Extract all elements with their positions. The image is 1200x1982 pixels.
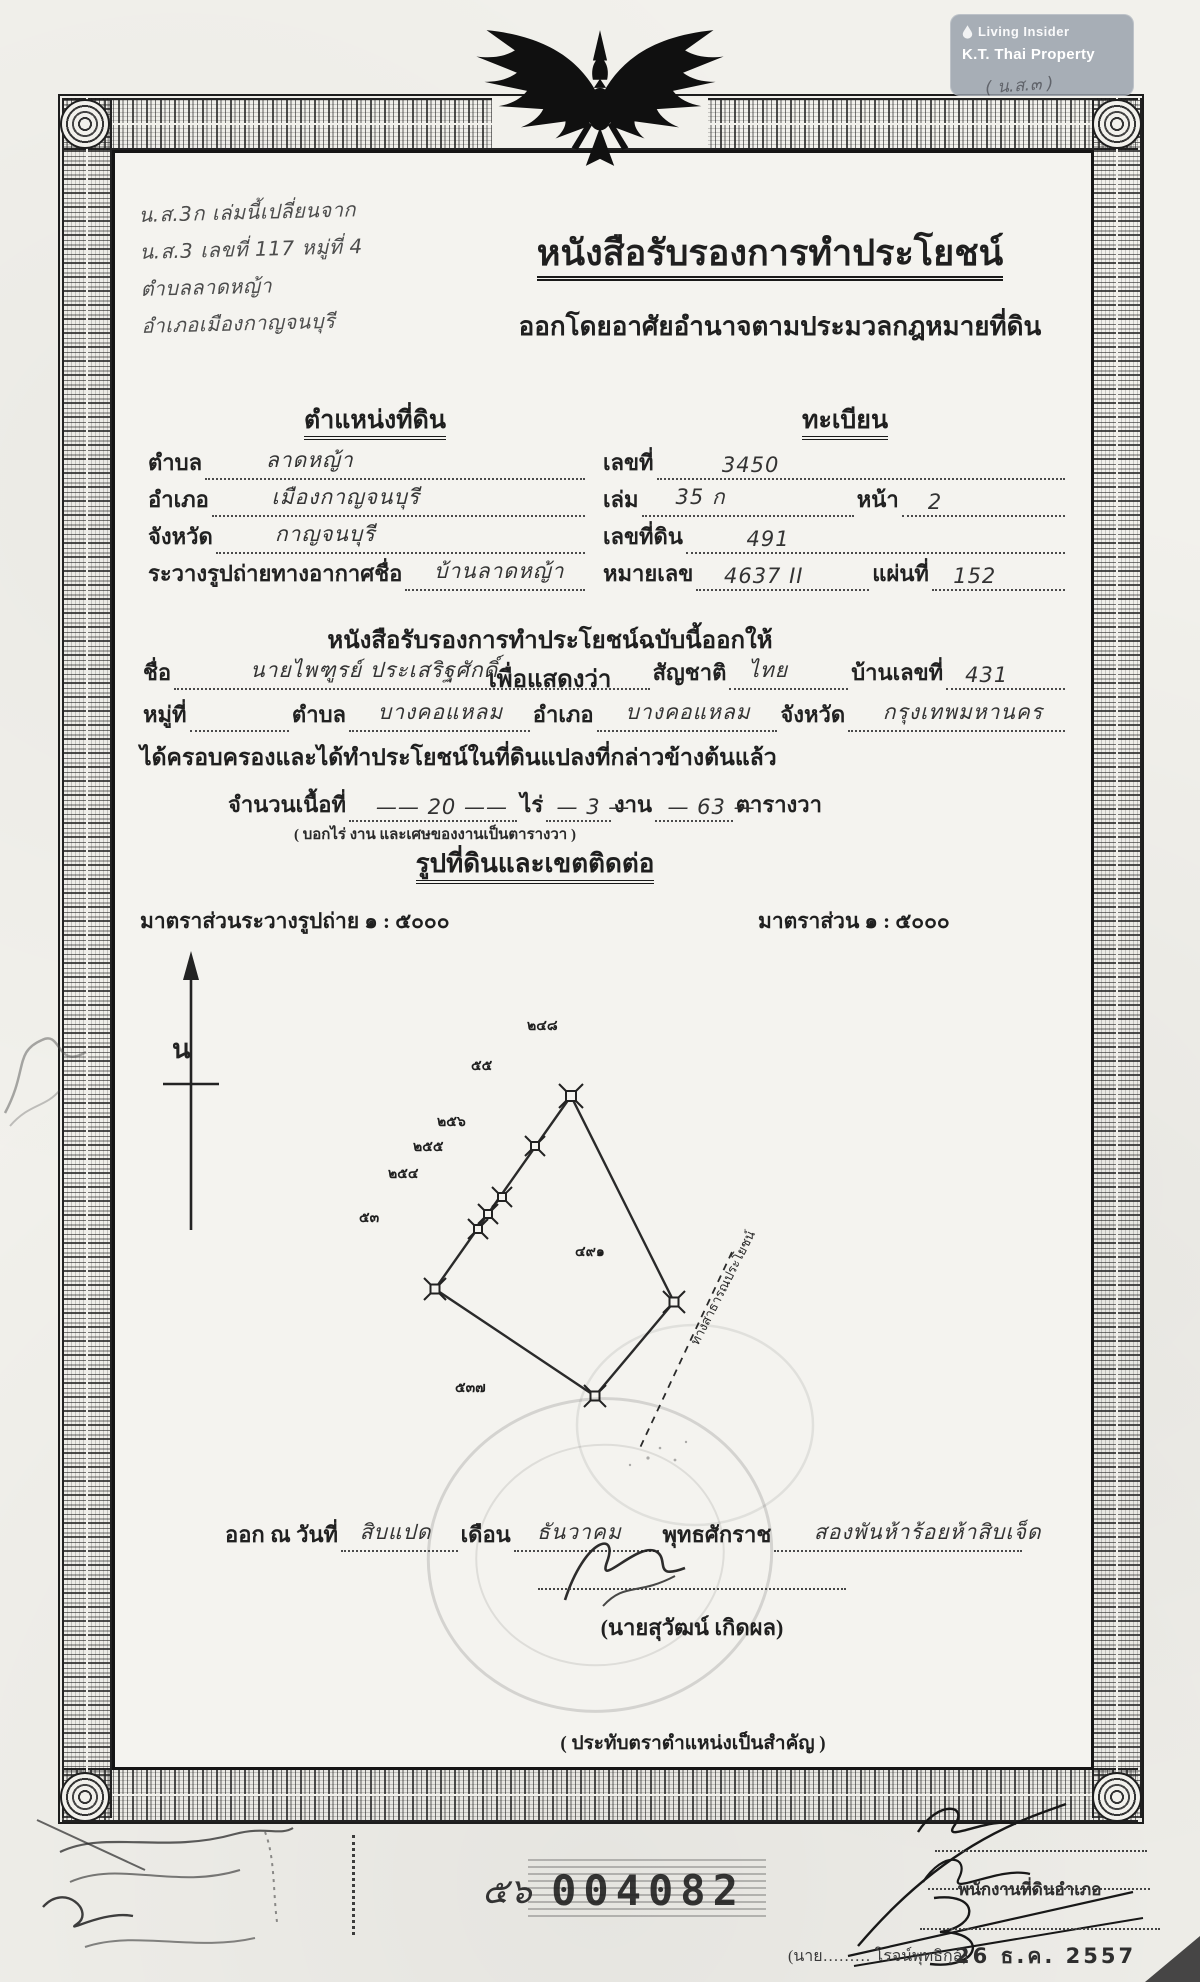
field-phaen-label: แผ่นที่ [869,556,932,591]
owner-moo-label: หมู่ที่ [140,697,190,732]
margin-scribble [0,1008,95,1138]
area-wa-value: 63 [667,795,755,819]
serial-prefix: ๕๖ [482,1864,533,1919]
field-amphoe: อำเภอ เมืองกาญจนบุรี [145,483,585,517]
field-tambon-label: ตำบล [145,445,205,480]
corner-note-line: น.ส.3ก เล่มนี้เปลี่ยนจาก [138,191,362,234]
north-label: น [172,1034,191,1064]
field-na-value: 2 [928,490,942,514]
watermark-brand-line: Living Insider [962,24,1122,39]
field-changwat-value: กาญจนบุรี [275,518,376,551]
issue-year-line: สองพันห้าร้อยห้าสิบเจ็ด [774,1514,1022,1552]
field-changwat-line: กาญจนบุรี [216,518,585,554]
watermark-brand: Living Insider [978,24,1070,39]
area-ngan-value: 3 [557,795,631,819]
field-lem-label: เล่ม [600,482,642,517]
corner-medallion-top-left [60,99,110,149]
field-changwat: จังหวัด กาญจนบุรี [145,520,585,554]
field-register-number: เลขที่ 3450 [600,446,1065,480]
field-mailek-label: หมายเลข [600,556,696,591]
serial-number: 004082 [536,1866,760,1915]
possession-statement: ได้ครอบครองและได้ทำประโยชน์ในที่ดินแปลงท… [140,740,777,776]
field-na-label: หน้า [854,482,902,517]
field-volume-page: เล่ม 35 ก หน้า 2 [600,483,1065,517]
corner-medallion-bottom-left [60,1772,110,1822]
adjacent-parcel-label: ๒๕๕ [413,1140,444,1155]
field-phaen-line: 152 [932,555,1065,591]
corner-medallion-bottom-right [1092,1772,1142,1822]
owner-name-line: นายไพฑูรย์ ประเสริฐศักดิ์ [174,654,649,690]
field-sheet-number: หมายเลข 4637 II แผ่นที่ 152 [600,557,1065,591]
border-band-left [62,98,112,1818]
map-scale-left: มาตราส่วนระวางรูปถ่าย ๑ : ๕๐๐๐ [140,905,450,938]
field-tambon-value: ลาดหญ้า [266,444,354,477]
area-ngan-line: 3 [546,784,611,822]
owner-house-line: 431 [946,654,1065,690]
location-heading: ตำแหน่งที่ดิน [275,400,475,440]
official-dotted-line-1 [935,1850,1147,1852]
official-name: (นาย……… โรจน์พุทธิกุล) [788,1944,968,1969]
adjacent-parcel-label: ๕๓ [359,1211,380,1226]
document-title: หนังสือรับรองการทำประโยชน์ [520,224,1020,281]
owner-name-label: ชื่อ [140,655,174,690]
adjacent-parcel-label: ๕๓๗ [455,1381,486,1396]
field-rawang-value: บ้านลาดหญ้า [434,555,564,588]
field-lekthidin-line: 491 [686,518,1065,554]
corner-note-line: อำเภอเมืองกาญจนบุรี [141,302,365,345]
area-rai-line: 20 [349,784,517,822]
map-scale-right: มาตราส่วน ๑ : ๕๐๐๐ [758,905,950,938]
field-lekthidin-label: เลขที่ดิน [600,519,686,554]
owner-nationality-line: ไทย [729,654,848,690]
parcel-number-label: ๔๙๑ [575,1245,605,1260]
scanned-land-deed-page: Living Insider K.T. Thai Property ( น.ส.… [0,0,1200,1982]
field-lek-label: เลขที่ [600,445,657,480]
date-stamp: 26 ธ.ค. 2557 [955,1940,1136,1973]
field-amphoe-label: อำเภอ [145,482,212,517]
area-row: จำนวนเนื้อที่ 20 ไร่ 3 งาน 63 ตารางวา [225,786,825,822]
cadastral-map: ๒๔๘ ๕๕ ๒๕๖ ๒๕๕ ๒๕๔ ๕๓ ๕๓๗ ๔๙๑ ทางสาธารณป… [330,990,760,1470]
area-rai-label: ไร่ [517,787,546,822]
field-lekthidin-value: 491 [747,527,790,551]
owner-tambon-value: บางคอแหลม [378,696,503,729]
owner-amphoe-value: บางคอแหลม [625,696,750,729]
parcel-boundary [435,1096,674,1396]
field-rawang-line: บ้านลาดหญ้า [405,555,585,591]
field-lem-line: 35 ก [642,481,854,517]
owner-name-value: นายไพฑูรย์ ประเสริฐศักดิ์ [250,654,498,687]
watermark-subtitle: K.T. Thai Property [962,46,1122,63]
owner-changwat-value: กรุงเทพมหานคร [883,696,1043,729]
field-lek-line: 3450 [657,444,1065,480]
owner-moo-line [190,696,289,732]
adjacent-parcel-label: ๕๕ [471,1059,493,1074]
register-heading: ทะเบียน [775,400,915,440]
field-tambon-line: ลาดหญ้า [205,444,585,480]
corner-shadow [1145,1936,1200,1982]
document-subtitle: ออกโดยอาศัยอำนาจตามประมวลกฎหมายที่ดิน [500,306,1060,347]
field-parcel-number: เลขที่ดิน 491 [600,520,1065,554]
seal-note: ( ประทับตราตำแหน่งเป็นสำคัญ ) [558,1728,828,1758]
signer-signature [545,1522,715,1612]
field-changwat-label: จังหวัด [145,519,216,554]
area-rai-value: 20 [376,795,508,819]
border-band-right [1092,98,1142,1818]
road-label: ทางสาธารณประโยชน์ [687,1228,758,1347]
signer-dotted-line [538,1588,846,1590]
owner-amphoe-line: บางคอแหลม [597,696,778,732]
vertical-dotted-divider [352,1835,355,1935]
field-mailek-line: 4637 II [696,555,869,591]
map-heading: รูปที่ดินและเขตติดต่อ [415,843,655,884]
droplet-icon [962,24,973,39]
area-label: จำนวนเนื้อที่ [225,787,349,822]
field-rawang: ระวางรูปถ่ายทางอากาศชื่อ บ้านลาดหญ้า [145,557,585,591]
issue-year-value: สองพันห้าร้อยห้าสิบเจ็ด [814,1516,1042,1549]
field-lem-value: 35 ก [675,481,725,514]
corner-note-line: น.ส.3 เลขที่ 117 หมู่ที่ 4 [139,228,363,271]
official-dotted-line-3 [920,1928,1160,1930]
owner-house-value: 431 [965,663,1008,687]
north-arrowhead [183,951,199,980]
field-tambon: ตำบล ลาดหญ้า [145,446,585,480]
corner-note-line: ตำบลลาดหญ้า [140,265,364,308]
owner-changwat-line: กรุงเทพมหานคร [848,696,1065,732]
owner-house-label: บ้านเลขที่ [848,655,946,690]
clerk-scribbles-left [25,1812,370,1972]
watermark-handwritten-note: ( น.ส.๓ ) [984,70,1054,102]
adjacent-parcel-label: ๒๕๖ [437,1115,466,1130]
issue-day-value: สิบแปด [360,1516,432,1549]
owner-address-row: หมู่ที่ ตำบล บางคอแหลม อำเภอ บางคอแหลม จ… [140,698,1065,732]
area-wa-line: 63 [655,784,733,822]
owner-name-row: ชื่อ นายไพฑูรย์ ประเสริฐศักดิ์ สัญชาติ ไ… [140,656,1065,690]
official-title: พนักงานที่ดินอำเภอ [958,1876,1101,1903]
field-mailek-value: 4637 II [724,564,804,588]
corner-medallion-top-right [1092,99,1142,149]
issue-day-line: สิบแปด [341,1514,458,1552]
owner-tambon-line: บางคอแหลม [349,696,530,732]
field-lek-value: 3450 [722,453,779,477]
owner-tambon-label: ตำบล [289,697,349,732]
owner-amphoe-label: อำเภอ [530,697,597,732]
field-na-line: 2 [902,481,1065,517]
field-phaen-value: 152 [953,564,996,588]
adjacent-parcel-label: ๒๕๔ [388,1167,419,1182]
signer-name: (นายสุวัฒน์ เกิดผล) [538,1610,846,1645]
field-amphoe-line: เมืองกาญจนบุรี [212,481,585,517]
adjacent-parcel-label: ๒๔๘ [527,1019,558,1034]
owner-nationality-label: สัญชาติ [650,655,730,690]
corner-notes: น.ส.3ก เล่มนี้เปลี่ยนจาก น.ส.3 เลขที่ 11… [138,191,365,345]
garuda-emblem [468,20,732,172]
owner-changwat-label: จังหวัด [777,697,848,732]
north-arrow: น [156,948,226,1238]
issue-month-label: เดือน [458,1517,514,1552]
field-amphoe-value: เมืองกาญจนบุรี [272,481,421,514]
owner-nationality-value: ไทย [748,654,788,687]
issue-prefix: ออก ณ วันที่ [222,1517,341,1552]
field-rawang-label: ระวางรูปถ่ายทางอากาศชื่อ [145,556,405,591]
stamp-speckles [629,1441,687,1466]
